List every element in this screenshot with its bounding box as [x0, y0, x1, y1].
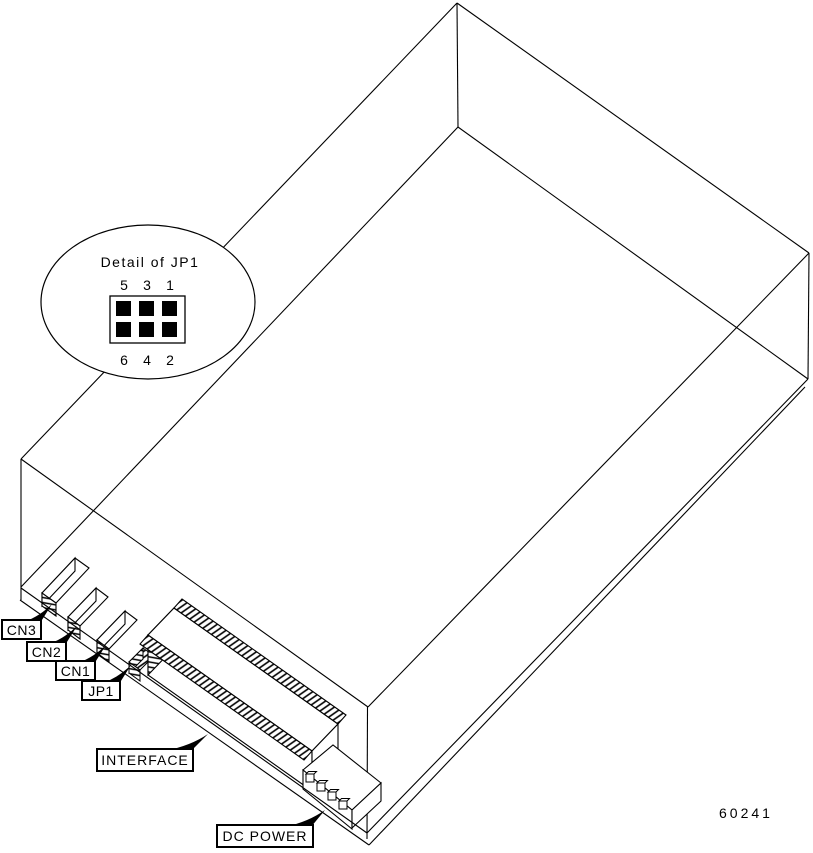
- dc-pin: [317, 783, 325, 791]
- edge-right-vertical: [808, 253, 809, 379]
- dc-pin: [339, 801, 347, 809]
- callout-label: INTERFACE: [101, 752, 189, 768]
- callout-dc-power: DC POWER: [217, 810, 325, 847]
- pin-square: [139, 322, 154, 337]
- strip-right-top: [367, 379, 808, 833]
- detail-pin-label: 5: [120, 277, 128, 293]
- callout-label: JP1: [88, 683, 114, 699]
- base-plate-strip: [20, 379, 808, 845]
- callout-pointer: [104, 665, 131, 683]
- figure-number: 60241: [719, 805, 773, 821]
- connector-cn1: [97, 611, 137, 662]
- figure-canvas: Detail of JP1 5 3 1 6 4 2 CN3 CN2 CN1: [0, 0, 813, 853]
- detail-pin-label: 3: [143, 277, 151, 293]
- pin-square: [139, 301, 154, 316]
- edge-apex-vertical: [457, 3, 458, 127]
- detail-pin-label: 1: [166, 277, 174, 293]
- callout-label: DC POWER: [223, 828, 308, 844]
- jp1-detail-bubble: Detail of JP1 5 3 1 6 4 2: [41, 225, 255, 379]
- detail-pin-label: 4: [143, 352, 151, 368]
- connector-cn2: [68, 588, 108, 639]
- pin-square: [162, 322, 177, 337]
- callout-interface: INTERFACE: [97, 734, 208, 771]
- callout-label: CN2: [32, 644, 62, 660]
- callout-cn3: CN3: [2, 604, 52, 639]
- edge-top-right: [457, 3, 809, 253]
- edge-top-left: [21, 3, 457, 459]
- pin-square: [116, 301, 131, 316]
- callout-label: CN1: [61, 663, 91, 679]
- detail-title: Detail of JP1: [101, 254, 200, 270]
- edge-inner-right: [458, 127, 808, 379]
- device-diagram: Detail of JP1 5 3 1 6 4 2 CN3 CN2 CN1: [0, 0, 813, 853]
- callout-label: CN3: [7, 622, 37, 638]
- dc-pin: [306, 774, 314, 782]
- dc-pin: [328, 792, 336, 800]
- strip-right-bottom: [369, 387, 805, 845]
- detail-pin-label: 6: [120, 352, 128, 368]
- detail-pin-label: 2: [166, 352, 174, 368]
- device-wireframe: [21, 3, 809, 839]
- pin-square: [162, 301, 177, 316]
- pin-square: [116, 322, 131, 337]
- edge-front-right: [368, 253, 809, 707]
